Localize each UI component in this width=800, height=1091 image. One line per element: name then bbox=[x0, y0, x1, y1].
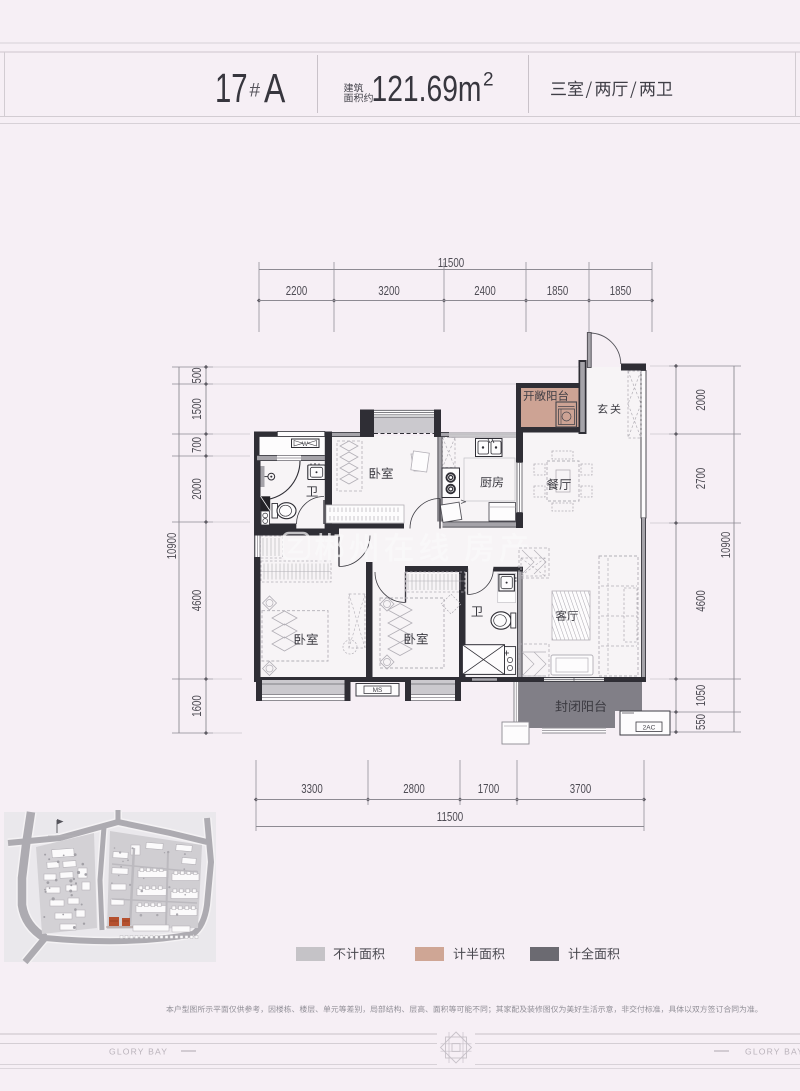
svg-text:10900: 10900 bbox=[718, 532, 733, 559]
svg-text:3300: 3300 bbox=[301, 781, 323, 796]
svg-text:1050: 1050 bbox=[693, 685, 708, 707]
svg-text:2700: 2700 bbox=[693, 468, 708, 490]
svg-text:2800: 2800 bbox=[403, 781, 425, 796]
svg-text:2: 2 bbox=[483, 70, 494, 91]
svg-text:2200: 2200 bbox=[286, 283, 308, 298]
svg-text:700: 700 bbox=[189, 437, 204, 453]
svg-text:4600: 4600 bbox=[693, 590, 708, 612]
svg-text:1700: 1700 bbox=[478, 781, 500, 796]
svg-text:GLORY BAY: GLORY BAY bbox=[109, 1047, 168, 1057]
svg-text:17: 17 bbox=[215, 65, 248, 111]
svg-text:2000: 2000 bbox=[189, 478, 204, 500]
svg-text:550: 550 bbox=[693, 714, 708, 730]
svg-text:4600: 4600 bbox=[189, 590, 204, 612]
svg-text:W: W bbox=[302, 441, 309, 448]
svg-text:1600: 1600 bbox=[189, 695, 204, 717]
svg-text:1850: 1850 bbox=[547, 283, 569, 298]
svg-text:A: A bbox=[264, 65, 286, 111]
svg-text:500: 500 bbox=[189, 368, 204, 384]
svg-text:2AC: 2AC bbox=[643, 725, 656, 732]
svg-text:2000: 2000 bbox=[693, 389, 708, 411]
svg-text:GLORY BAY: GLORY BAY bbox=[745, 1047, 800, 1057]
svg-text:3700: 3700 bbox=[570, 781, 592, 796]
svg-text:1500: 1500 bbox=[189, 398, 204, 420]
svg-text:10900: 10900 bbox=[164, 533, 179, 560]
svg-text:#: # bbox=[250, 81, 261, 102]
svg-text:1850: 1850 bbox=[610, 283, 632, 298]
svg-text:11500: 11500 bbox=[438, 255, 465, 270]
svg-text:11500: 11500 bbox=[437, 809, 464, 824]
svg-text:121.69m: 121.69m bbox=[372, 69, 482, 109]
svg-text:2400: 2400 bbox=[474, 283, 496, 298]
svg-text:3200: 3200 bbox=[378, 283, 400, 298]
svg-text:MS: MS bbox=[373, 687, 383, 694]
